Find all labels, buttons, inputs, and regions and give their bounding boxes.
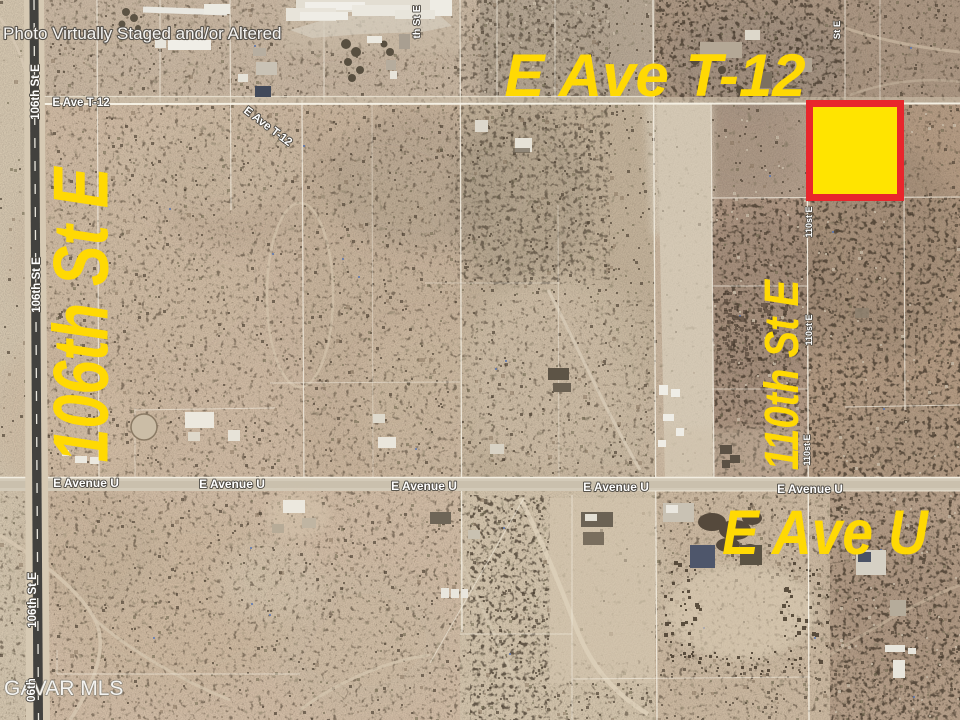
svg-text:106th St E: 106th St E <box>30 64 42 120</box>
svg-text:E Ave T-12: E Ave T-12 <box>504 42 805 109</box>
svg-text:E Ave T-12: E Ave T-12 <box>52 97 109 109</box>
svg-text:Photo Virtually Staged and/or: Photo Virtually Staged and/or Altered <box>3 24 281 43</box>
svg-text:E Avenue U: E Avenue U <box>777 482 843 496</box>
svg-text:110st E: 110st E <box>804 206 814 237</box>
svg-text:E Ave U: E Ave U <box>722 496 929 568</box>
svg-text:E Avenue U: E Avenue U <box>53 476 119 490</box>
svg-text:106th St E: 106th St E <box>38 166 125 463</box>
svg-text:th St E: th St E <box>411 5 423 38</box>
svg-text:110st E: 110st E <box>802 434 812 465</box>
svg-text:110th St E: 110th St E <box>755 278 808 470</box>
svg-text:110st E: 110st E <box>804 314 814 345</box>
svg-text:E Avenue U: E Avenue U <box>199 477 265 491</box>
svg-text:St E: St E <box>832 21 843 39</box>
svg-text:E Avenue U: E Avenue U <box>583 480 649 494</box>
svg-text:06th: 06th <box>26 678 38 702</box>
svg-text:106th St E: 106th St E <box>27 572 39 628</box>
svg-text:GAVAR MLS: GAVAR MLS <box>4 677 123 700</box>
svg-text:106th St E: 106th St E <box>31 257 43 313</box>
svg-text:E Avenue U: E Avenue U <box>391 479 457 493</box>
